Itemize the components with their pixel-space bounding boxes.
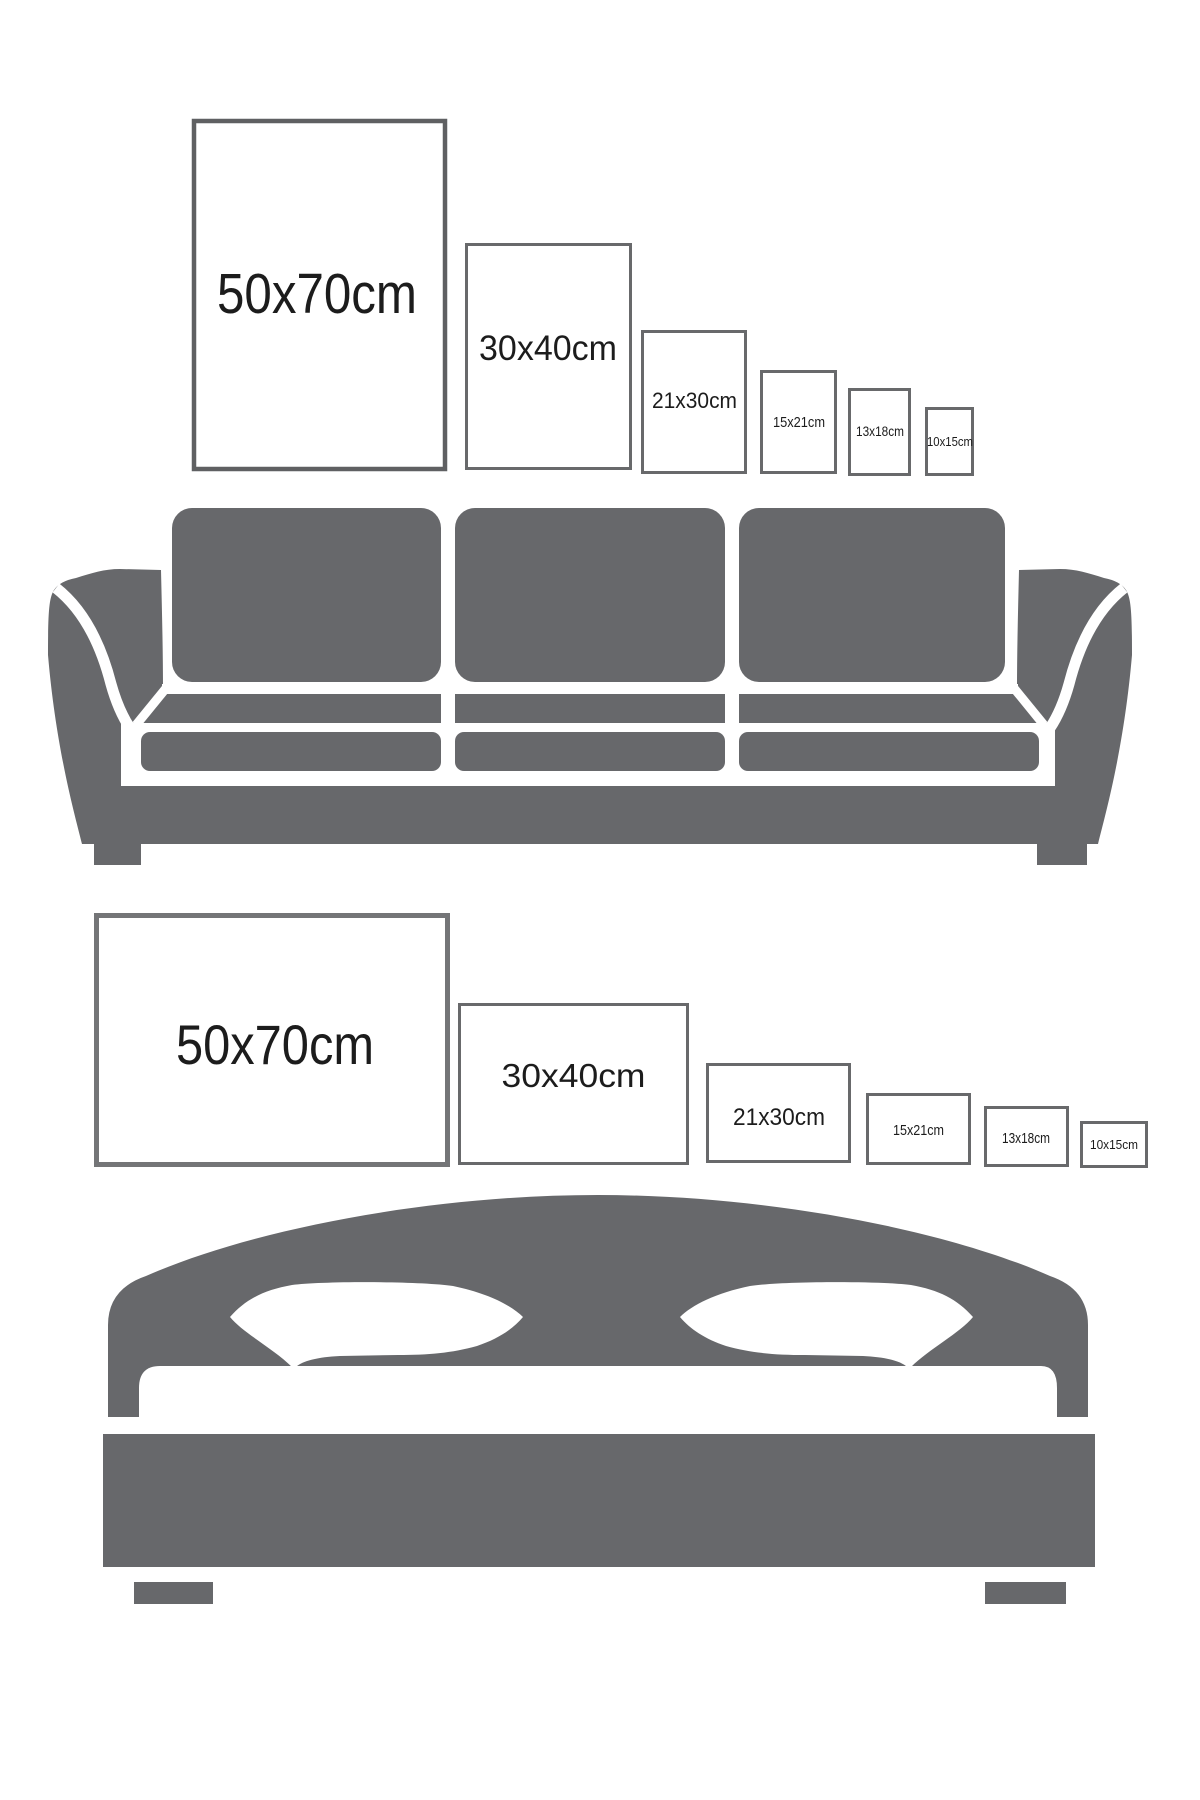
svg-text:10x15cm: 10x15cm	[927, 434, 973, 449]
svg-text:15x21cm: 15x21cm	[773, 415, 825, 431]
svg-text:30x40cm: 30x40cm	[479, 329, 617, 368]
svg-text:15x21cm: 15x21cm	[893, 1123, 944, 1139]
svg-text:13x18cm: 13x18cm	[856, 423, 904, 439]
svg-text:21x30cm: 21x30cm	[652, 388, 737, 413]
svg-text:50x70cm: 50x70cm	[176, 1013, 374, 1076]
svg-text:10x15cm: 10x15cm	[1090, 1137, 1138, 1152]
svg-text:30x40cm: 30x40cm	[502, 1058, 646, 1095]
svg-text:21x30cm: 21x30cm	[733, 1104, 825, 1131]
svg-text:50x70cm: 50x70cm	[217, 262, 417, 325]
svg-text:13x18cm: 13x18cm	[1002, 1131, 1050, 1147]
